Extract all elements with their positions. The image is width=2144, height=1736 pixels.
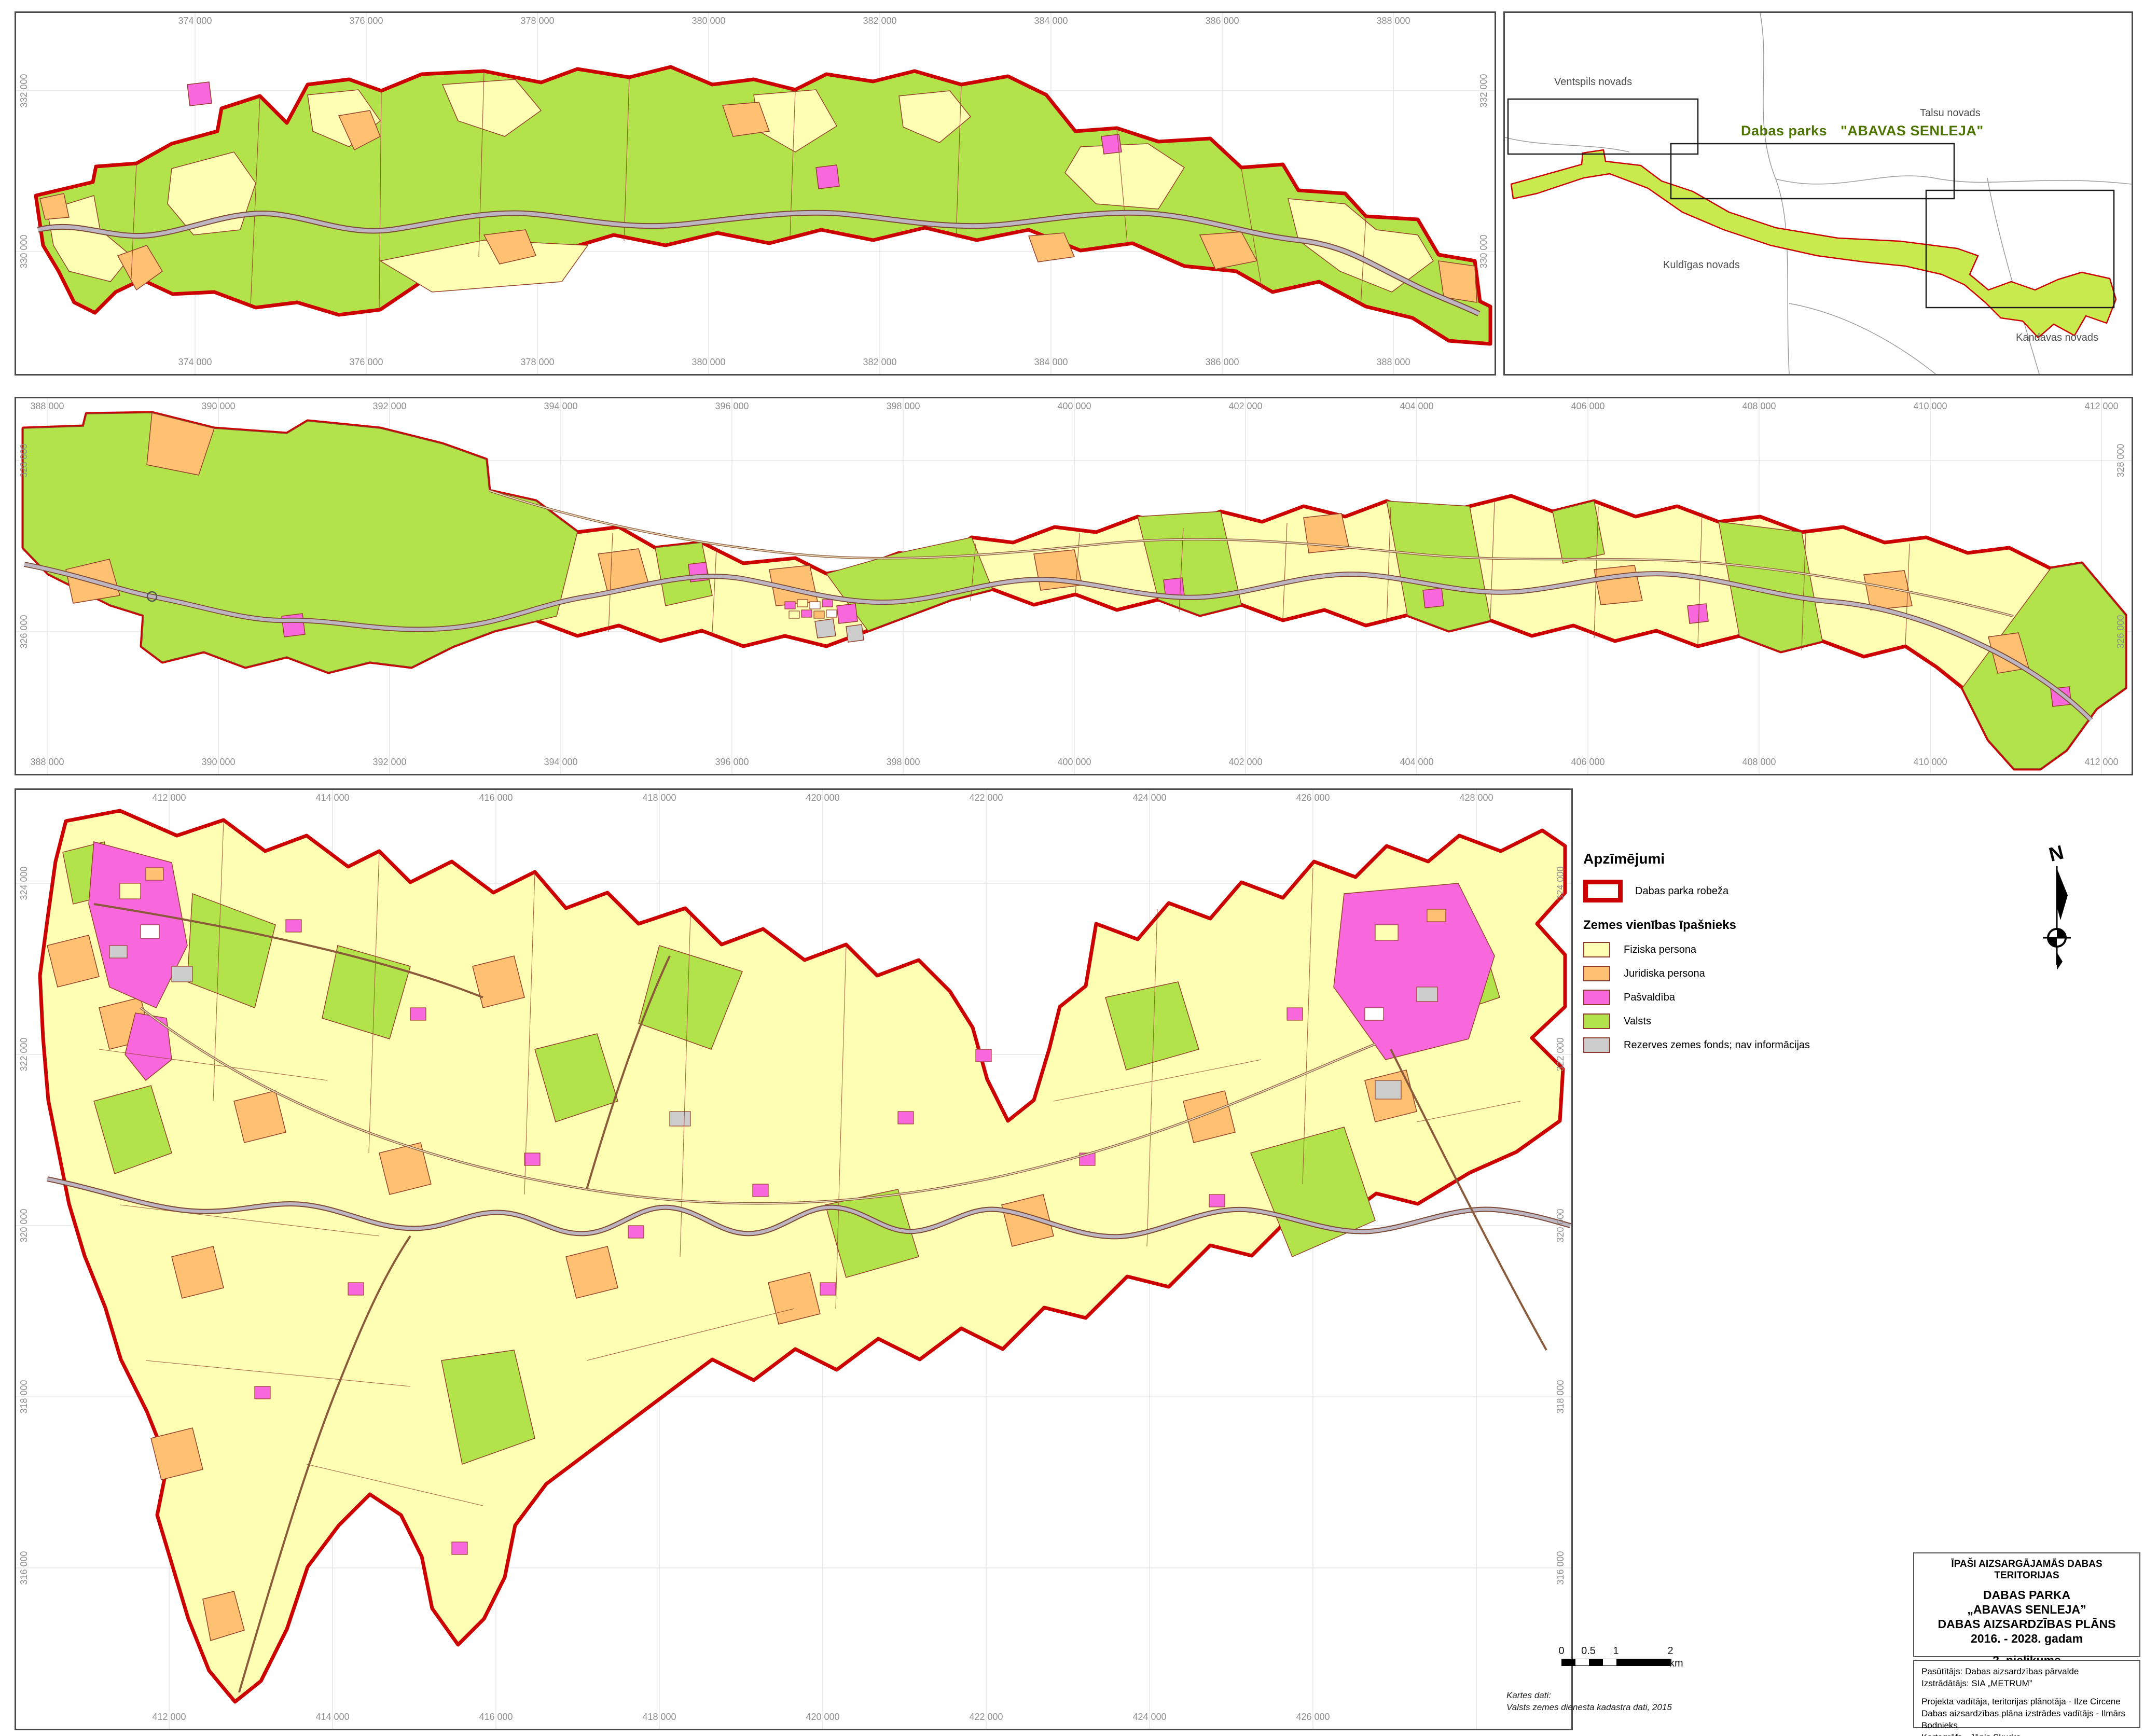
map-sheet: 374 000376 000378 000380 000382 000384 0… [0,0,2144,1736]
legend-item-label: Dabas parka robeža [1635,885,1728,897]
middle-strip-map-graphic [16,398,2132,774]
credits-block: Pasūtītājs: Dabas aizsardzības pārvalde … [1913,1660,2140,1728]
park-boundary-swatch [1583,880,1623,902]
legend-item-valsts: Valsts [1583,1013,1905,1029]
locator-map-panel: Ventspils novads Talsu novads Kuldīgas n… [1503,11,2133,376]
north-label: N [2047,841,2066,866]
scale-tick-05: 0.5 [1581,1645,1596,1657]
credits-developer: Izstrādātājs: SIA „METRUM” [1921,1678,2132,1690]
legend-item-rezerves: Rezerves zemes fonds; nav informācijas [1583,1037,1905,1053]
pasvaldiba-swatch [1583,990,1610,1005]
legend-item-label: Fiziska persona [1624,944,1696,956]
region-label-kuldigas: Kuldīgas novads [1663,259,1740,271]
scale-bar: 0 0.5 1 2 km [1556,1645,1712,1671]
scale-tick-2: 2 [1667,1645,1673,1657]
title-line4: 2016. - 2028. gadam [1918,1631,2135,1646]
title-line2: „ABAVAS SENLEJA” [1918,1602,2135,1617]
juridiska-swatch [1583,966,1610,981]
middle-strip-map-panel: 388 000390 000392 000394 000396 000398 0… [15,397,2133,775]
legend-item-label: Juridiska persona [1624,968,1705,980]
map-data-source: Kartes dati: Valsts zemes dienesta kadas… [1506,1690,1672,1714]
region-label-talsu: Talsu novads [1920,107,1981,119]
credits-plan-manager: Dabas aizsardzības plāna izstrādes vadīt… [1921,1708,2132,1732]
locator-map-graphic [1505,13,2132,374]
title-line1: DABAS PARKA [1918,1588,2135,1602]
region-label-ventspils: Ventspils novads [1554,76,1632,88]
top-strip-map-panel: 374 000376 000378 000380 000382 000384 0… [15,11,1496,376]
credits-cartographer: Kartogrāfs - Jānis Skudra [1921,1732,2132,1736]
region-label-kandavas: Kandavas novads [2016,332,2098,344]
top-strip-map-graphic [16,13,1495,374]
title-line3: DABAS AIZSARDZĪBAS PLĀNS [1918,1617,2135,1631]
map-data-source-line1: Kartes dati: [1506,1690,1672,1702]
park-title-name: "ABAVAS SENLEJA" [1841,123,1984,138]
scale-tick-0: 0 [1558,1645,1564,1657]
park-title: Dabas parks"ABAVAS SENLEJA" [1741,123,1984,139]
north-arrow: N [2034,841,2080,971]
legend-item-label: Valsts [1624,1016,1651,1027]
legend-item-label: Rezerves zemes fonds; nav informācijas [1624,1039,1810,1051]
rezerves-swatch [1583,1037,1610,1053]
legend-item-juridiska: Juridiska persona [1583,966,1905,981]
legend-item-pasvaldiba: Pašvaldība [1583,990,1905,1005]
legend-item-boundary: Dabas parka robeža [1583,880,1905,902]
title-block: ĪPAŠI AIZSARGĀJAMĀS DABAS TERITORIJAS DA… [1913,1552,2140,1657]
scale-tick-1: 1 [1613,1645,1619,1657]
bottom-detail-map-panel: 412 000414 000416 000418 000420 000422 0… [15,788,1573,1730]
legend-heading: Apzīmējumi [1583,851,1905,867]
park-outline-small [1511,150,2116,338]
legend-owner-heading: Zemes vienības īpašnieks [1583,918,1905,933]
credits-project-manager: Projekta vadītāja, teritorijas plānotāja… [1921,1696,2132,1708]
credits-client: Pasūtītājs: Dabas aizsardzības pārvalde [1921,1666,2132,1678]
park-title-prefix: Dabas parks [1741,123,1827,138]
title-supertitle: ĪPAŠI AIZSARGĀJAMĀS DABAS TERITORIJAS [1918,1559,2135,1581]
scale-bar-graphic [1561,1659,1671,1666]
bottom-detail-map-graphic [16,790,1571,1729]
legend: Apzīmējumi Dabas parka robeža Zemes vien… [1583,851,1905,1061]
legend-item-label: Pašvaldība [1624,992,1675,1004]
scale-unit: km [1669,1658,1683,1670]
valsts-swatch [1583,1013,1610,1029]
legend-item-fiziska: Fiziska persona [1583,942,1905,957]
north-arrow-blade [2057,868,2068,920]
map-data-source-line2: Valsts zemes dienesta kadastra dati, 201… [1506,1702,1672,1714]
fiziska-swatch [1583,942,1610,957]
